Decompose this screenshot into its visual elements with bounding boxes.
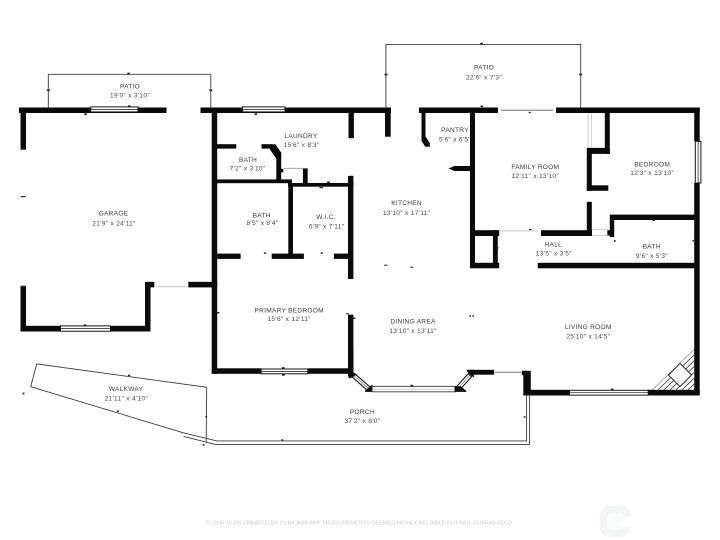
svg-text:13'5" x 3'5": 13'5" x 3'5": [536, 251, 572, 258]
svg-text:FAMILY ROOM: FAMILY ROOM: [511, 164, 559, 171]
svg-text:LAUNDRY: LAUNDRY: [284, 133, 317, 140]
svg-text:PATIO: PATIO: [120, 84, 140, 91]
svg-text:GARAGE: GARAGE: [99, 211, 129, 218]
svg-text:15'6" x 12'11": 15'6" x 12'11": [267, 316, 311, 323]
svg-text:BEDROOM: BEDROOM: [634, 162, 670, 169]
svg-text:BATH: BATH: [239, 157, 257, 164]
svg-text:PANTRY: PANTRY: [441, 127, 469, 134]
svg-text:HALL: HALL: [545, 241, 563, 248]
svg-text:12'3" x 13'10": 12'3" x 13'10": [630, 170, 674, 177]
svg-text:37'2" x 8'0": 37'2" x 8'0": [345, 418, 381, 425]
svg-text:8'5" x 8'4": 8'5" x 8'4": [246, 220, 278, 227]
svg-text:19'0" x 3'10": 19'0" x 3'10": [110, 93, 150, 100]
svg-text:21'9" x 24'11": 21'9" x 24'11": [92, 220, 136, 227]
svg-text:BATH: BATH: [643, 243, 661, 250]
svg-text:DINING AREA: DINING AREA: [390, 319, 436, 326]
svg-text:PRIMARY BEDROOM: PRIMARY BEDROOM: [254, 307, 323, 314]
svg-text:12'11" x 13'10": 12'11" x 13'10": [512, 173, 560, 180]
svg-text:KITCHEN: KITCHEN: [391, 200, 422, 207]
svg-text:6'9" x 7'11": 6'9" x 7'11": [309, 223, 345, 230]
svg-text:7'2" x 3'10": 7'2" x 3'10": [230, 165, 266, 172]
svg-text:9'6" x 5'3": 9'6" x 5'3": [636, 253, 668, 260]
svg-text:PATIO: PATIO: [474, 64, 494, 71]
svg-text:LIVING ROOM: LIVING ROOM: [565, 324, 612, 331]
svg-text:13'10" x 13'11": 13'10" x 13'11": [389, 328, 437, 335]
svg-text:22'6" x 7'3": 22'6" x 7'3": [466, 74, 502, 81]
svg-text:PORCH: PORCH: [350, 409, 375, 416]
svg-text:5'6" x 6'5": 5'6" x 6'5": [439, 136, 471, 143]
svg-text:WALKWAY: WALKWAY: [109, 386, 144, 393]
svg-text:21'11" x 4'10": 21'11" x 4'10": [105, 396, 149, 403]
svg-text:FLOOR PLAN CREATED BY CUBICASA: FLOOR PLAN CREATED BY CUBICASA APP. MEAS…: [206, 521, 514, 527]
svg-text:BATH: BATH: [253, 212, 271, 219]
svg-text:13'10" x 17'11": 13'10" x 17'11": [383, 210, 431, 217]
svg-text:W.I.C.: W.I.C.: [316, 214, 335, 221]
svg-text:25'10" x 14'5": 25'10" x 14'5": [566, 333, 610, 340]
svg-text:15'6" x 8'3": 15'6" x 8'3": [284, 142, 320, 149]
